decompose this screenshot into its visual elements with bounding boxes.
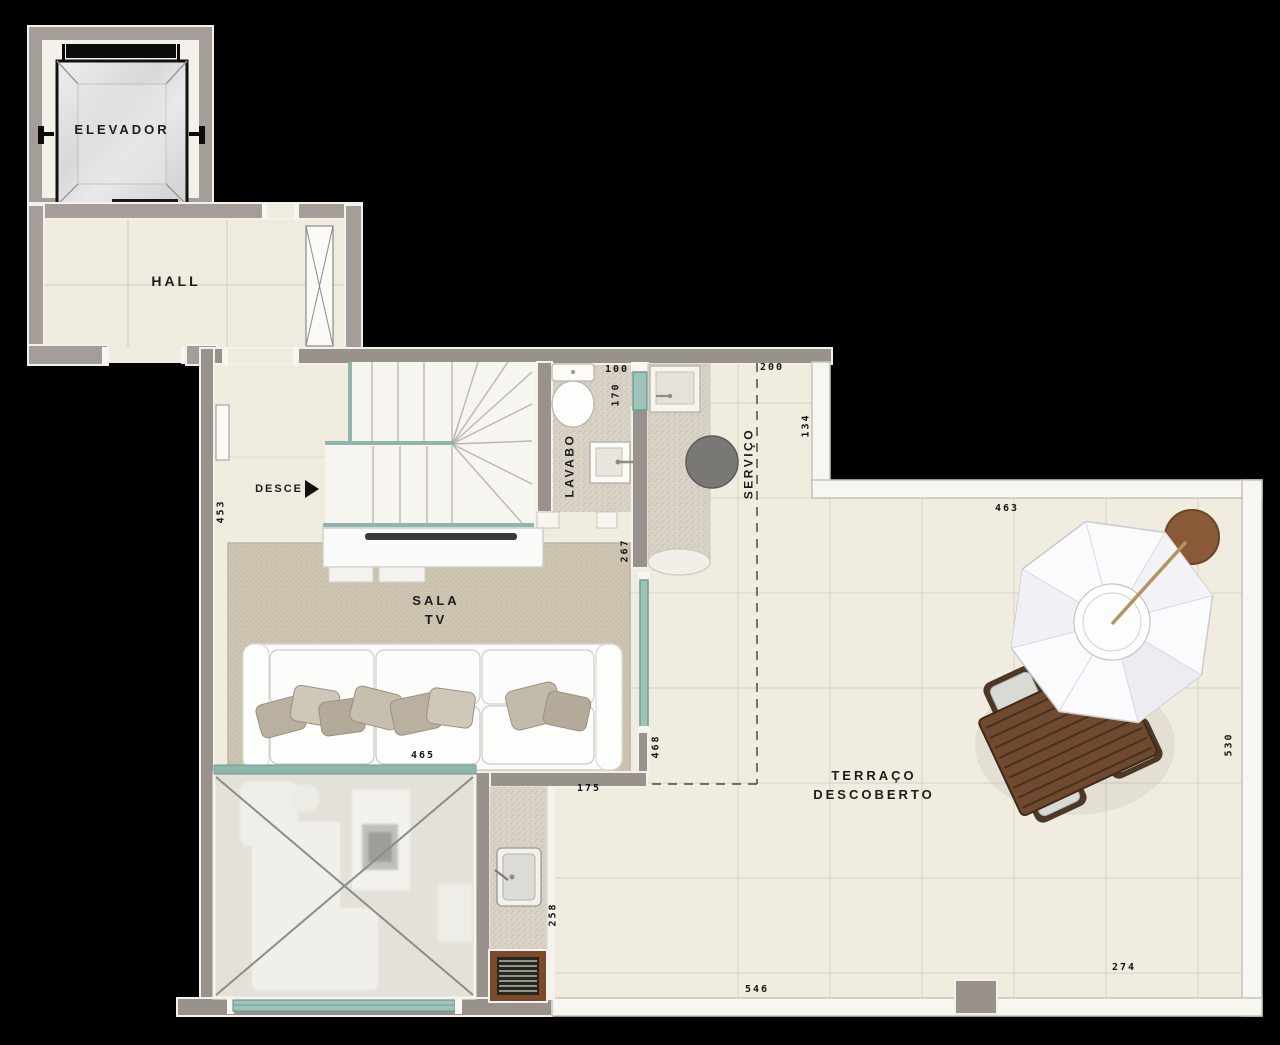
entry-door — [306, 226, 333, 346]
dim-274: 274 — [1094, 962, 1154, 973]
label-terraco-descoberto: DESCOBERTO — [784, 788, 964, 802]
dim-267: 267 — [620, 521, 631, 581]
void-window — [227, 998, 462, 1014]
lavabo-window — [633, 372, 647, 410]
label-desce: DESCE — [233, 483, 303, 495]
charcoal-grill — [489, 950, 547, 1002]
elevator-door — [66, 44, 176, 58]
dim-175: 175 — [559, 783, 619, 794]
dim-134: 134 — [801, 396, 812, 456]
floor-plan-canvas — [0, 0, 1280, 1045]
laundry-tank — [650, 366, 700, 412]
label-sala: SALA — [376, 594, 496, 608]
dim-468: 468 — [651, 717, 662, 777]
dim-465: 465 — [393, 750, 453, 761]
parapet-bottom — [552, 998, 1262, 1016]
label-lavabo: LAVABO — [563, 416, 576, 516]
dim-200: 200 — [742, 362, 802, 373]
water-heater — [686, 436, 738, 488]
dim-453: 453 — [216, 482, 227, 542]
label-sala-tv: TV — [376, 613, 496, 627]
label-terraco: TERRAÇO — [784, 769, 964, 783]
dim-546: 546 — [727, 984, 787, 995]
dim-170: 170 — [611, 365, 622, 425]
dim-463: 463 — [977, 503, 1037, 514]
label-hall: HALL — [116, 274, 236, 289]
tv — [365, 533, 517, 540]
bbq-sink — [495, 848, 541, 906]
dim-530: 530 — [1224, 715, 1235, 775]
elevator-shaft — [28, 26, 213, 212]
void-glass-railing — [214, 765, 476, 774]
label-elevador: ELEVADOR — [52, 123, 192, 137]
wall-sink — [590, 442, 633, 483]
bbq-counter — [489, 787, 547, 1002]
staircase-down — [323, 362, 534, 527]
double-height-void — [214, 765, 476, 1014]
floor-plan: ELEVADOR HALL DESCE SALA TV LAVABO SERVI… — [0, 0, 1280, 1045]
label-servico: SERVIÇO — [742, 414, 755, 514]
parapet-right — [1242, 480, 1262, 1016]
sala-glass-door — [640, 580, 648, 728]
parapet-top — [812, 480, 1262, 498]
parapet-servico — [812, 362, 830, 498]
dim-258: 258 — [548, 885, 559, 945]
